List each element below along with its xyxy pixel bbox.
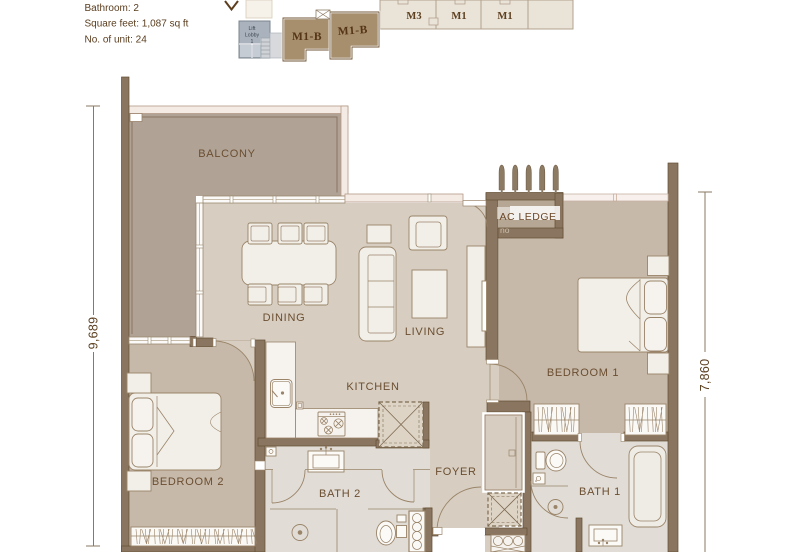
- svg-text:M1-B: M1-B: [292, 31, 322, 43]
- svg-text:7,860: 7,860: [698, 359, 712, 392]
- svg-text:KITCHEN: KITCHEN: [346, 381, 399, 393]
- svg-text:M1: M1: [497, 11, 512, 22]
- svg-text:FOYER: FOYER: [435, 466, 476, 478]
- svg-text:Lobby: Lobby: [245, 33, 260, 39]
- svg-text:M3: M3: [406, 11, 421, 22]
- svg-text:AC LEDGE: AC LEDGE: [499, 211, 556, 223]
- svg-text:M1-B: M1-B: [337, 24, 368, 38]
- svg-text:BEDROOM 2: BEDROOM 2: [152, 476, 224, 488]
- svg-text:BALCONY: BALCONY: [198, 148, 255, 160]
- svg-text:Bathroom: 2: Bathroom: 2: [85, 3, 140, 14]
- svg-text:Lift: Lift: [249, 26, 256, 32]
- svg-text:BATH 2: BATH 2: [319, 488, 361, 500]
- svg-text:9,689: 9,689: [87, 317, 101, 350]
- svg-text:Square feet: 1,087 sq ft: Square feet: 1,087 sq ft: [85, 19, 189, 30]
- svg-text:no: no: [500, 225, 510, 235]
- svg-text:No. of unit: 24: No. of unit: 24: [85, 34, 148, 45]
- svg-text:LIVING: LIVING: [405, 326, 445, 338]
- svg-text:BEDROOM 1: BEDROOM 1: [547, 367, 619, 379]
- svg-text:BATH 1: BATH 1: [579, 486, 621, 498]
- svg-text:DINING: DINING: [263, 312, 306, 324]
- svg-text:M1: M1: [451, 11, 466, 22]
- svg-text:1: 1: [251, 39, 254, 45]
